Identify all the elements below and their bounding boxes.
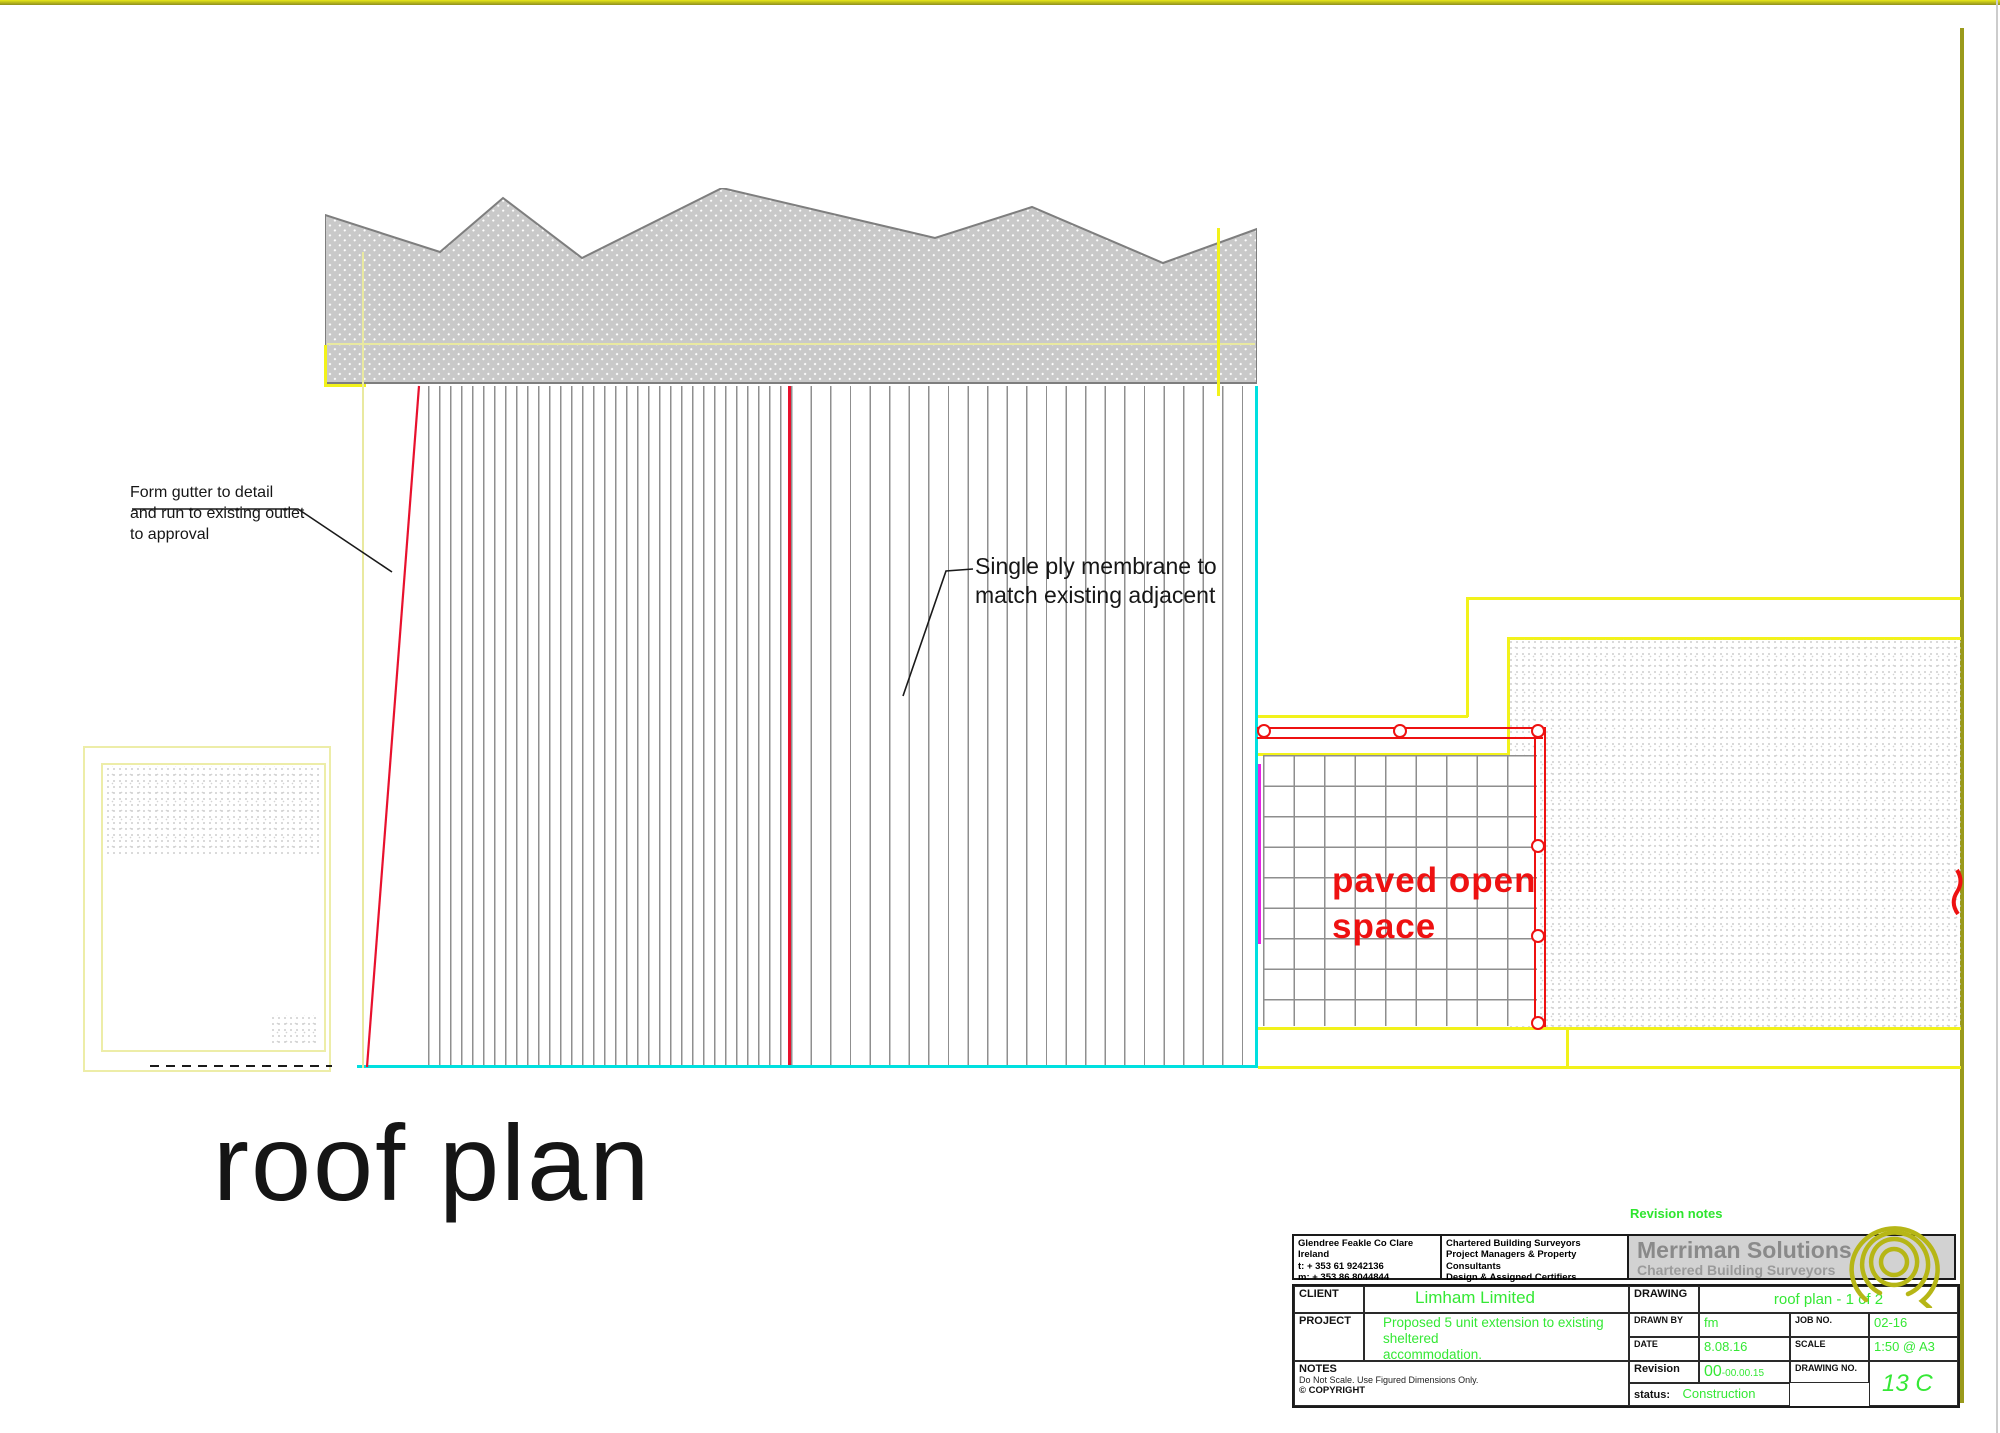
drawing-label: DRAWING bbox=[1629, 1286, 1699, 1313]
services-list: Chartered Building Surveyors Project Man… bbox=[1442, 1236, 1629, 1278]
stipple-texture bbox=[1508, 639, 1961, 1028]
screen-edge-line bbox=[1996, 0, 1998, 1433]
gutter-note-line: Form gutter to detail bbox=[130, 483, 304, 504]
merriman-spiral-logo bbox=[1846, 1220, 1942, 1308]
drawing-title: roof plan bbox=[213, 1100, 651, 1225]
notes-label: NOTES bbox=[1299, 1363, 1624, 1375]
revision-label: Revision bbox=[1629, 1361, 1699, 1383]
membrane-note-line: Single ply membrane to bbox=[975, 552, 1217, 581]
railing-post-marker bbox=[1531, 1016, 1545, 1030]
yellow-construction-line bbox=[1466, 597, 1961, 600]
job-no-label: JOB NO. bbox=[1790, 1313, 1869, 1337]
status-cell: status: Construction bbox=[1629, 1383, 1790, 1406]
yellow-construction-line bbox=[1466, 597, 1469, 717]
date-value: 8.08.16 bbox=[1699, 1337, 1790, 1361]
paved-label-line: space bbox=[1332, 904, 1536, 950]
railing-post-marker bbox=[1393, 724, 1407, 738]
railing-post-marker bbox=[1531, 839, 1545, 853]
yellow-construction-line bbox=[1258, 1066, 1961, 1069]
date-label: DATE bbox=[1629, 1337, 1699, 1361]
drawn-by-value: fm bbox=[1699, 1313, 1790, 1337]
drawn-by-label: DRAWN BY bbox=[1629, 1313, 1699, 1337]
project-line: Proposed 5 unit extension to existing sh… bbox=[1383, 1315, 1624, 1347]
revision-value: 00-00.00.15 bbox=[1699, 1361, 1790, 1383]
contact-line: t: + 353 61 9242136 bbox=[1298, 1261, 1436, 1272]
client-label: CLIENT bbox=[1294, 1286, 1364, 1313]
roof-edge-cyan-bottom bbox=[357, 1065, 1258, 1068]
job-no-value: 02-16 bbox=[1869, 1313, 1958, 1337]
service-line: Project Managers & Property Consultants bbox=[1446, 1249, 1623, 1272]
yellow-construction-line bbox=[1217, 228, 1220, 396]
scale-value: 1:50 @ A3 bbox=[1869, 1337, 1958, 1361]
roof-joint-red-line bbox=[788, 386, 791, 1067]
notes-line: Do Not Scale. Use Figured Dimensions Onl… bbox=[1299, 1375, 1624, 1385]
stipple-texture bbox=[270, 1015, 320, 1046]
service-line: Chartered Building Surveyors bbox=[1446, 1238, 1623, 1249]
notes-cell: NOTES Do Not Scale. Use Figured Dimensio… bbox=[1294, 1361, 1629, 1406]
project-value: Proposed 5 unit extension to existing sh… bbox=[1364, 1313, 1629, 1361]
gutter-red-line bbox=[367, 386, 419, 1067]
roof-membrane-stripes-dense bbox=[428, 386, 788, 1066]
existing-roof-hatch bbox=[325, 188, 1257, 384]
membrane-note: Single ply membrane to match existing ad… bbox=[975, 552, 1217, 610]
yellow-construction-line bbox=[327, 343, 1255, 345]
project-line: accommodation. bbox=[1383, 1347, 1624, 1361]
paved-open-space-label: paved open space bbox=[1332, 858, 1536, 950]
contact-line: m: + 353 86 8044844 bbox=[1298, 1272, 1436, 1283]
drawing-no-label: DRAWING NO. bbox=[1790, 1361, 1869, 1383]
membrane-note-line: match existing adjacent bbox=[975, 581, 1217, 610]
railing-post-marker bbox=[1257, 724, 1271, 738]
drawing-sheet: Form gutter to detail and run to existin… bbox=[0, 0, 2000, 1433]
revision-notes-label: Revision notes bbox=[1630, 1206, 1722, 1221]
drawing-no-value: 13 C bbox=[1869, 1361, 1958, 1406]
revision-suffix: -00.00.15 bbox=[1722, 1368, 1764, 1379]
yellow-construction-line bbox=[362, 252, 364, 1068]
client-value: Limham Limited bbox=[1364, 1286, 1629, 1313]
copyright-line: © COPYRIGHT bbox=[1299, 1385, 1624, 1396]
paved-label-line: paved open bbox=[1332, 858, 1536, 904]
gutter-note: Form gutter to detail and run to existin… bbox=[130, 483, 304, 545]
status-value: Construction bbox=[1683, 1386, 1756, 1401]
project-label: PROJECT bbox=[1294, 1313, 1364, 1361]
gutter-note-line: to approval bbox=[130, 525, 304, 546]
railing-post-marker bbox=[1531, 724, 1545, 738]
yellow-construction-line bbox=[324, 384, 366, 387]
page-border-bottom bbox=[0, 0, 2000, 5]
gutter-note-line: and run to existing outlet bbox=[130, 504, 304, 525]
status-label: status: bbox=[1634, 1389, 1670, 1401]
contact-line: Glendree Feakle Co Clare Ireland bbox=[1298, 1238, 1436, 1261]
roof-membrane-stripes-wide bbox=[791, 386, 1255, 1066]
magenta-boundary-line bbox=[1258, 764, 1261, 944]
yellow-construction-line bbox=[1258, 715, 1468, 718]
yellow-construction-line bbox=[324, 345, 327, 387]
scale-label: SCALE bbox=[1790, 1337, 1869, 1361]
contact-info: Glendree Feakle Co Clare Ireland t: + 35… bbox=[1294, 1236, 1442, 1278]
revision-main: 00 bbox=[1704, 1363, 1722, 1380]
service-line: Design & Assigned Certifiers bbox=[1446, 1272, 1623, 1283]
stipple-texture bbox=[105, 766, 319, 854]
yellow-construction-line bbox=[1566, 1027, 1569, 1069]
